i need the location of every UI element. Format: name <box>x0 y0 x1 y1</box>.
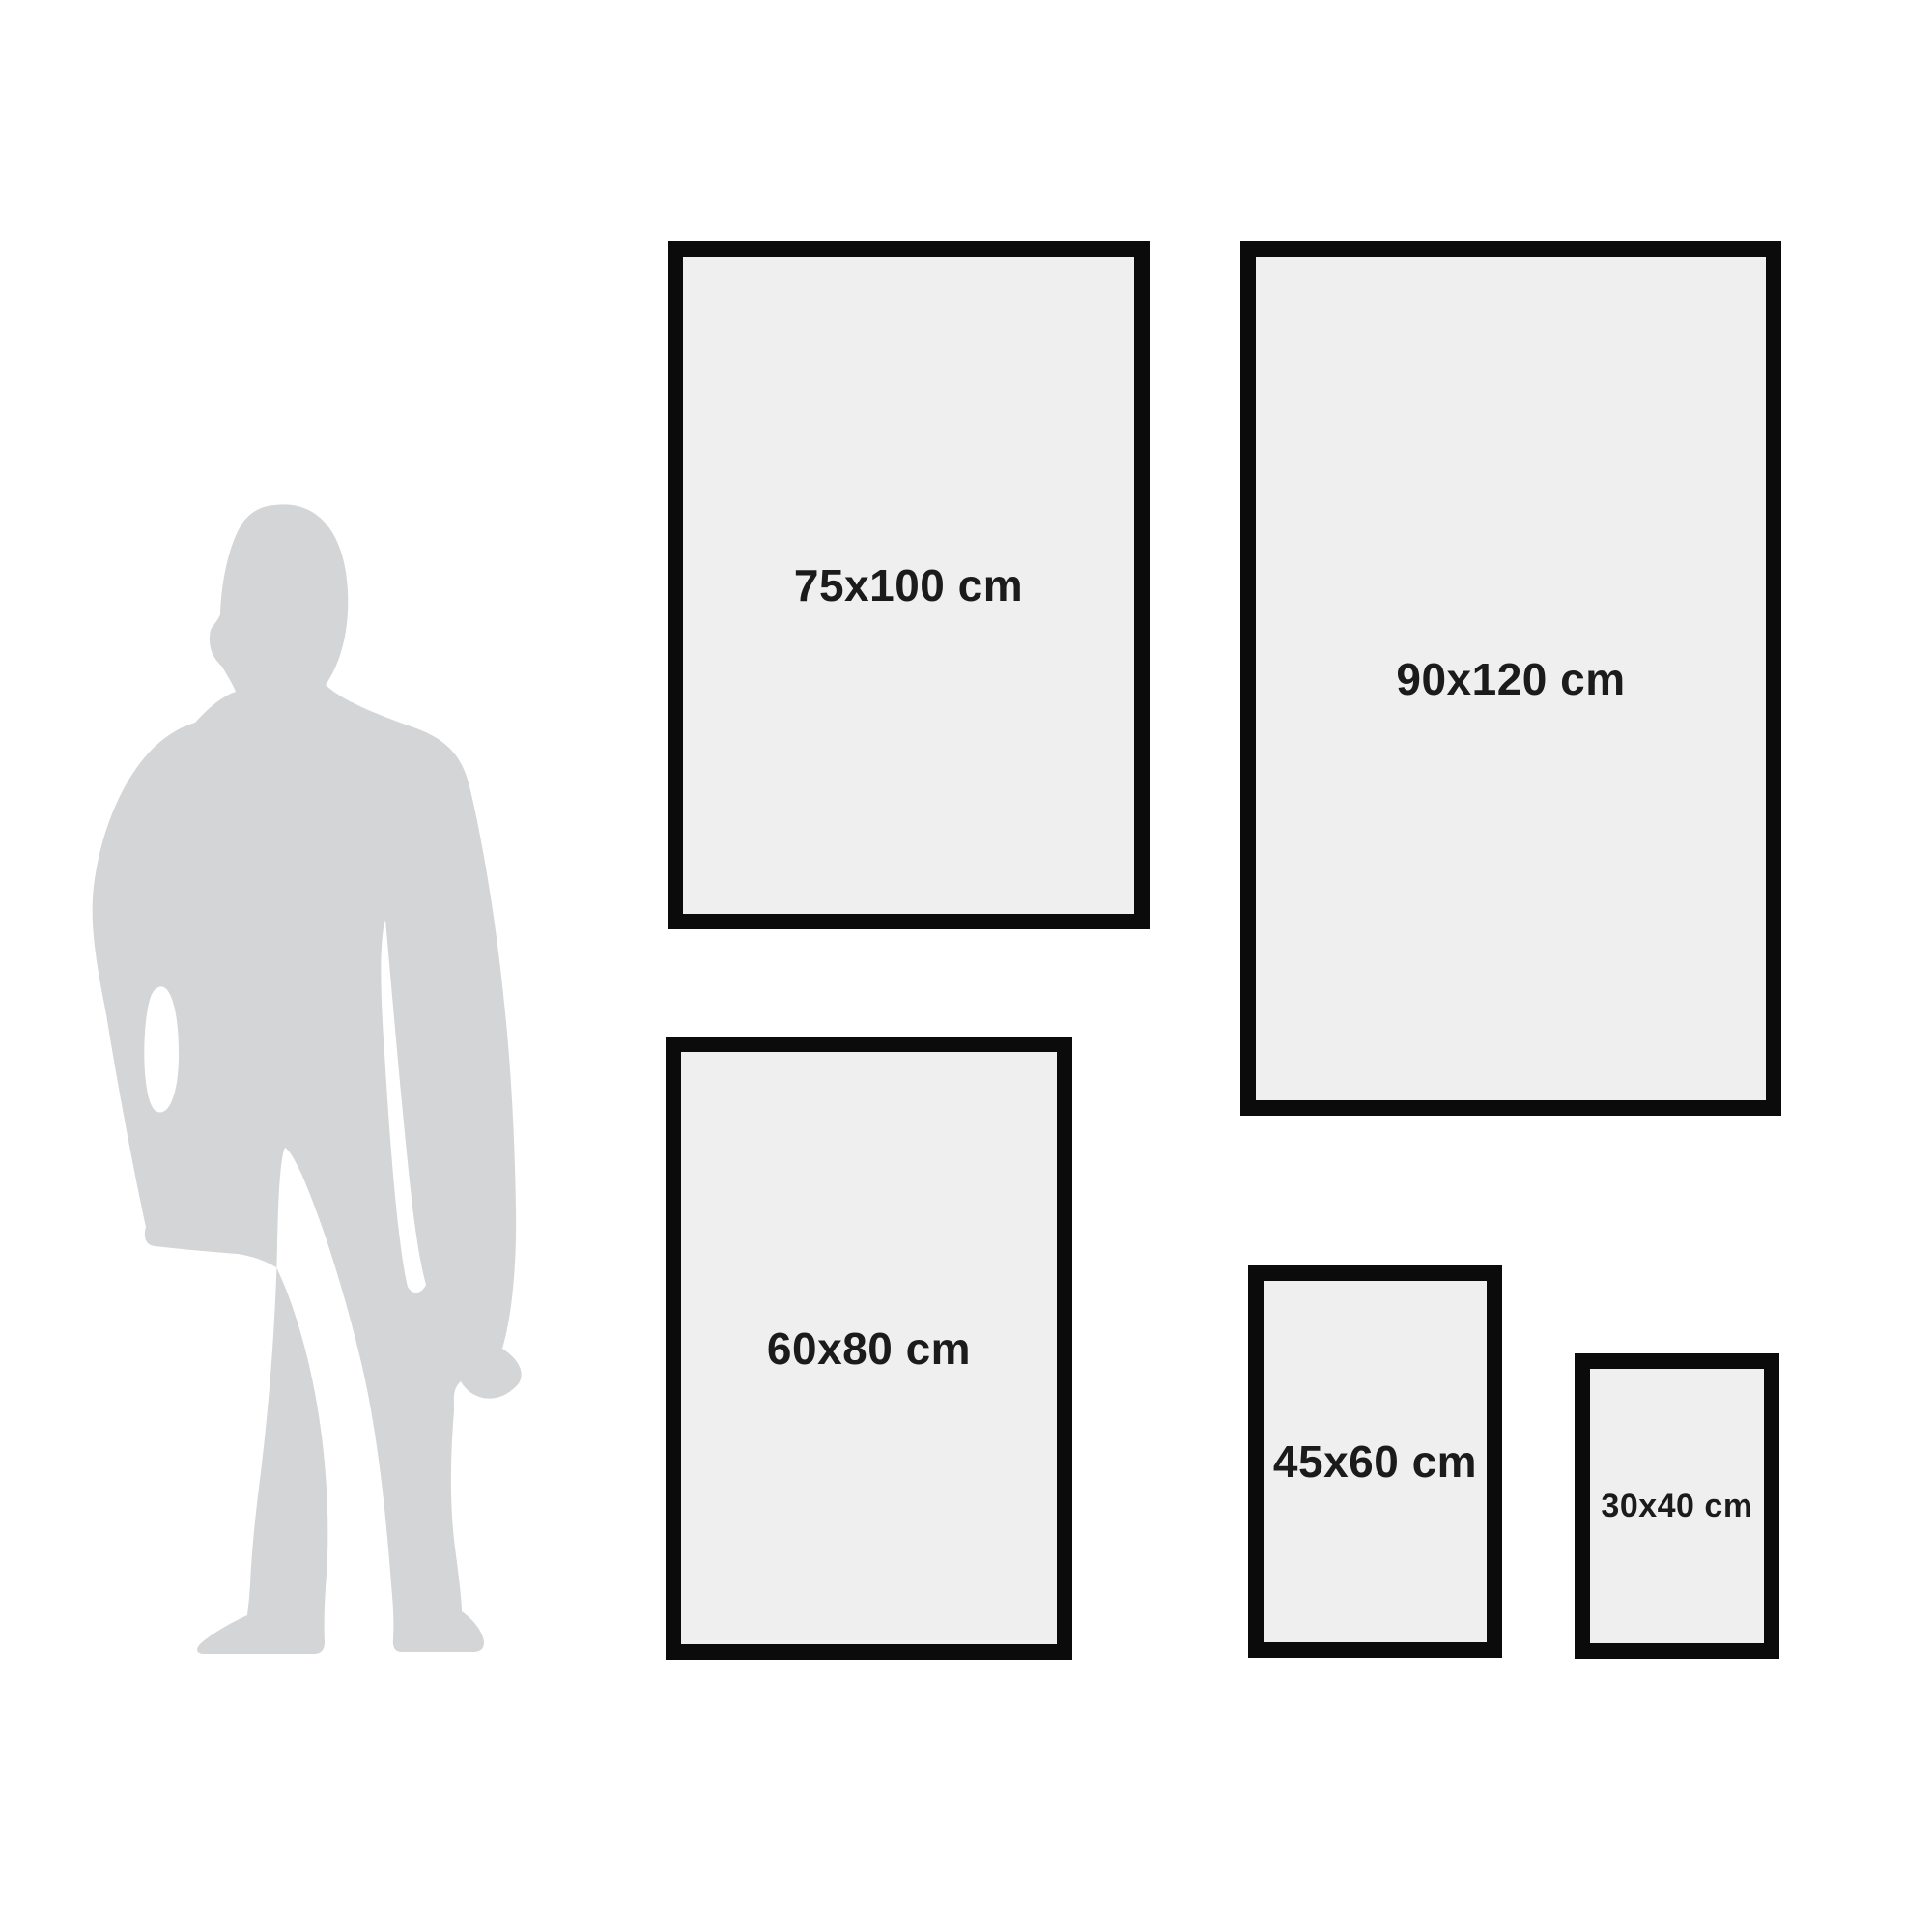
size-frame-60x80: 60x80 cm <box>666 1037 1072 1660</box>
size-label-45x60: 45x60 cm <box>1273 1435 1477 1488</box>
size-label-60x80: 60x80 cm <box>767 1322 971 1375</box>
size-guide-diagram: 75x100 cm 90x120 cm 60x80 cm 45x60 cm 30… <box>0 0 1932 1932</box>
size-frame-30x40: 30x40 cm <box>1575 1353 1779 1659</box>
size-frame-45x60: 45x60 cm <box>1248 1265 1502 1658</box>
size-label-90x120: 90x120 cm <box>1396 653 1625 705</box>
size-frame-90x120: 90x120 cm <box>1240 241 1781 1116</box>
size-label-30x40: 30x40 cm <box>1601 1488 1752 1525</box>
size-label-75x100: 75x100 cm <box>794 559 1023 611</box>
size-frame-75x100: 75x100 cm <box>668 241 1150 929</box>
